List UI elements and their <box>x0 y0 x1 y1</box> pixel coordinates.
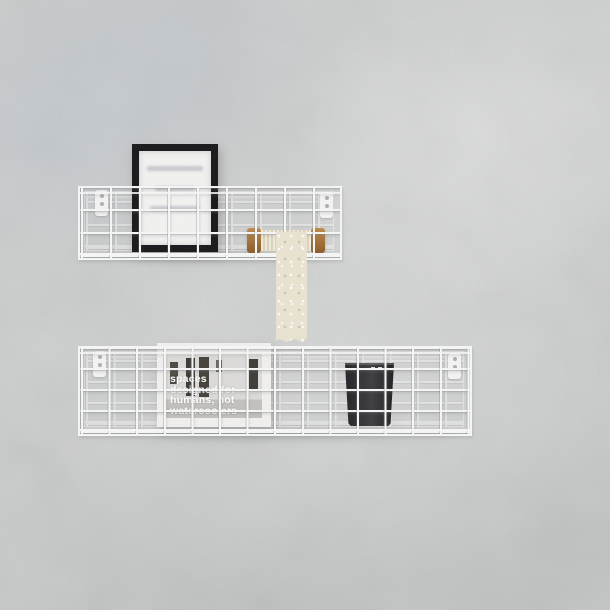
faint-print-line <box>147 166 203 171</box>
concrete-wall-scene: spaces designed for humans, not watercoo… <box>0 0 610 610</box>
bottom-wire-basket <box>78 346 472 436</box>
hanging-lace-ribbon <box>276 232 307 342</box>
